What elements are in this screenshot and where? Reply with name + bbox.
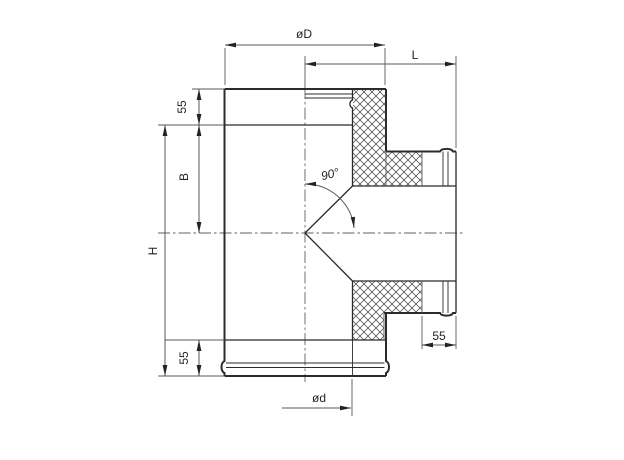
arrowhead [197,222,202,233]
top-socket-label: 55 [175,100,189,114]
arrowhead [422,343,433,348]
arrowhead [163,365,168,376]
insulation-hatch-upper [353,90,422,187]
arrowhead [197,89,202,100]
body-left-edge [222,89,225,376]
branch-offset-label: B [177,173,191,181]
liner-wall-upper [350,90,353,187]
dim-arc-branch-angle [305,184,354,228]
branch-length-label: L [412,48,419,62]
branch-socket-label: 55 [432,329,446,343]
outer-diameter-label: øD [296,27,312,41]
branch-bottom-edge [384,313,456,316]
branch-top-edge [386,149,456,152]
inner-diameter-label: ød [312,391,326,405]
arrowhead [340,406,351,411]
extension-lines [158,48,456,416]
insulation-sections [353,90,422,341]
arrowhead [197,340,202,351]
branch-angle-label: 90° [320,165,341,183]
centerlines [158,87,465,382]
arrowhead [197,125,202,136]
tee-section-drawing: øD L 55 B H 55 55 ød 90° [0,0,624,460]
liner-cone-transition [305,186,353,281]
insulation-hatch-lower [353,281,422,340]
body-right-edge-lower [386,313,389,376]
bottom-socket-label: 55 [177,351,191,365]
arrowhead [305,62,316,67]
arrowhead [305,182,316,186]
arrowhead [445,62,456,67]
arrowhead [197,114,202,125]
arrowhead [374,43,385,48]
technical-drawing-canvas: øD L 55 B H 55 55 ød 90° [0,0,624,460]
arrowhead [445,343,456,348]
arrowhead [197,365,202,376]
dimension-labels: øD L 55 B H 55 55 ød 90° [146,27,446,405]
arrowhead [225,43,236,48]
arrowhead [163,125,168,136]
arrowhead [351,217,355,228]
body-height-label: H [146,247,160,256]
